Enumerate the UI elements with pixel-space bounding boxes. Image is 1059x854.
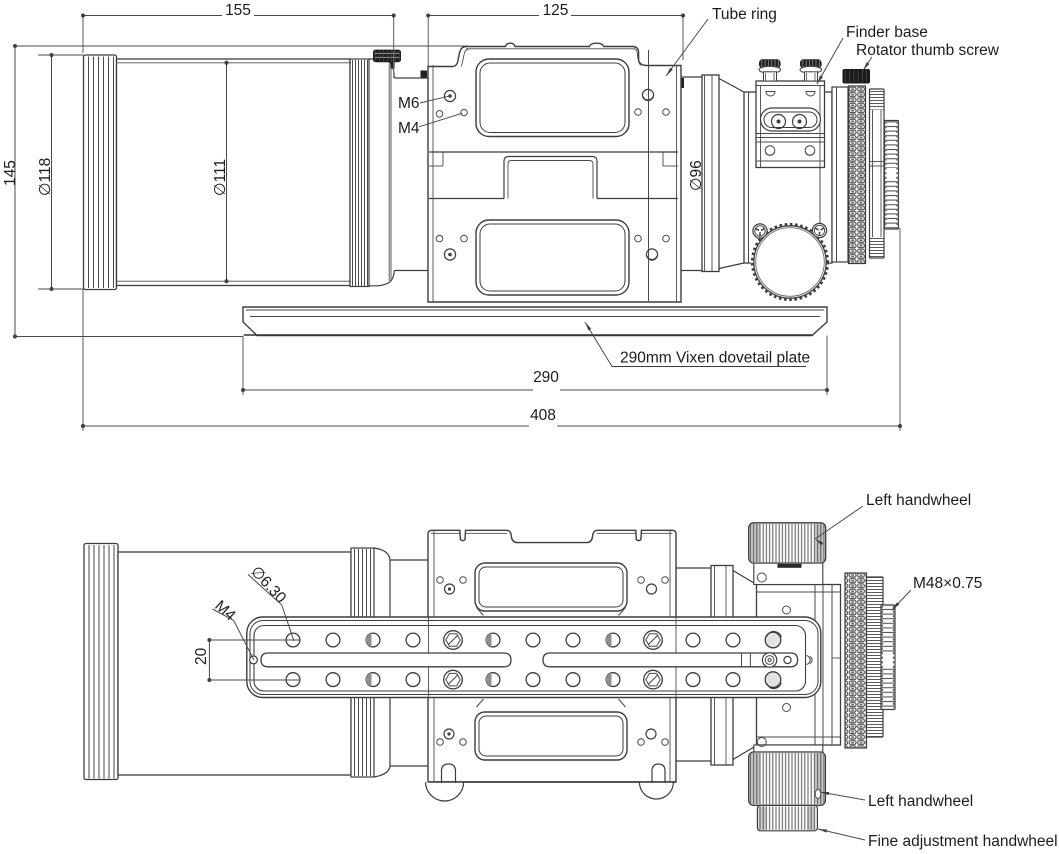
svg-text:155: 155 <box>225 2 251 19</box>
svg-text:M4: M4 <box>398 120 420 137</box>
svg-text:∅111: ∅111 <box>212 159 229 196</box>
svg-text:M48×0.75: M48×0.75 <box>913 575 982 592</box>
svg-text:Rotator thumb screw: Rotator thumb screw <box>856 42 1000 59</box>
svg-text:408: 408 <box>530 407 556 424</box>
svg-text:290mm Vixen dovetail plate: 290mm Vixen dovetail plate <box>620 350 810 367</box>
svg-text:M6: M6 <box>398 95 420 112</box>
svg-text:∅118: ∅118 <box>37 158 54 196</box>
svg-text:145: 145 <box>2 160 19 186</box>
svg-text:Tube ring: Tube ring <box>712 6 777 23</box>
svg-text:125: 125 <box>543 2 569 19</box>
svg-text:Fine adjustment handwheel: Fine adjustment handwheel <box>868 833 1058 850</box>
svg-text:290: 290 <box>533 369 559 386</box>
svg-text:Left handwheel: Left handwheel <box>866 492 971 509</box>
svg-text:Finder base: Finder base <box>846 24 928 41</box>
svg-text:20: 20 <box>193 647 210 665</box>
svg-text:Left handwheel: Left handwheel <box>868 793 973 810</box>
svg-text:∅96: ∅96 <box>688 160 705 191</box>
